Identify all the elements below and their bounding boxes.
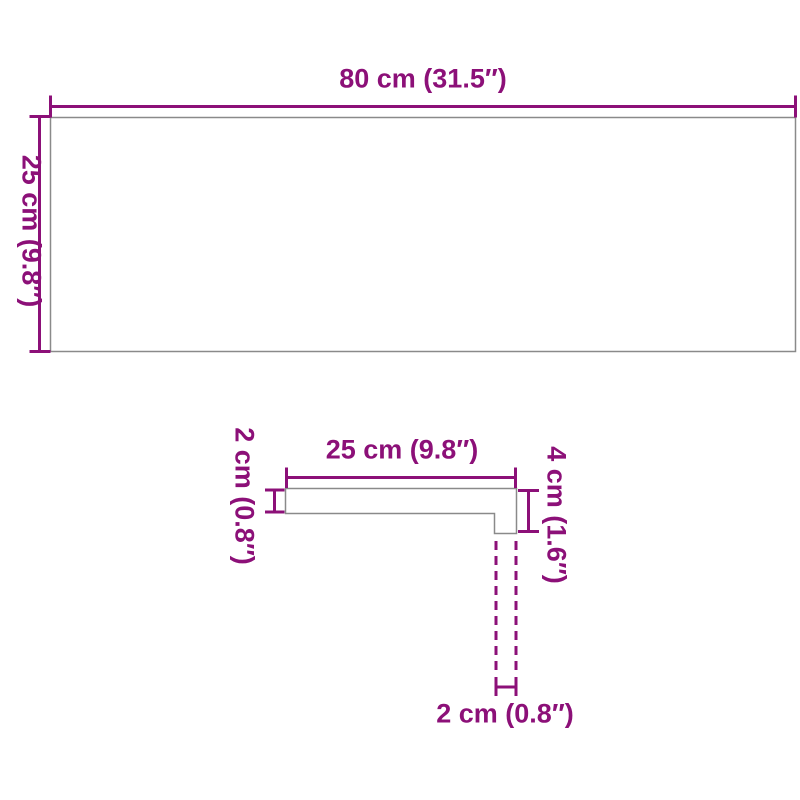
panel-top-view-outline (51, 118, 796, 352)
profile-edge-height-dimension (518, 490, 539, 532)
profile-lip-extension-lines (496, 541, 516, 675)
top-view-width-label: 80 cm (31.5″) (339, 66, 507, 93)
edge-profile-outline (286, 489, 517, 534)
product-dimension-diagram: 80 cm (31.5″) 25 cm (9.8″) 25 cm (9.8″) … (0, 0, 800, 800)
top-view-width-dimension (49, 96, 797, 118)
top-view-height-label: 25 cm (9.8″) (18, 155, 45, 308)
profile-thickness-dimension (265, 489, 285, 513)
profile-edge-height-label: 4 cm (1.6″) (543, 446, 570, 584)
diagram-canvas (0, 0, 800, 800)
profile-thickness-label: 2 cm (0.8″) (231, 427, 258, 565)
profile-width-dimension (286, 468, 516, 489)
profile-lip-width-dimension (496, 677, 516, 696)
profile-width-label: 25 cm (9.8″) (326, 437, 479, 464)
profile-lip-width-label: 2 cm (0.8″) (436, 701, 574, 728)
